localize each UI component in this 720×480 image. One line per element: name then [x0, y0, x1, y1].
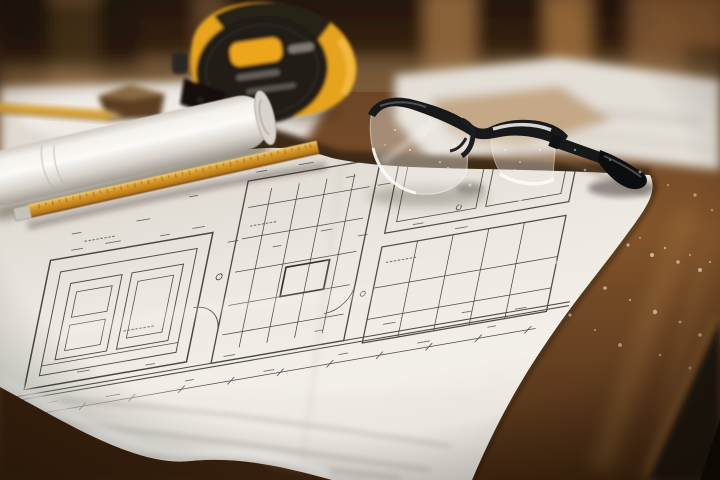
- vignette: [0, 0, 720, 480]
- photo-construction-plans: [0, 0, 720, 480]
- scene-canvas: [0, 0, 720, 480]
